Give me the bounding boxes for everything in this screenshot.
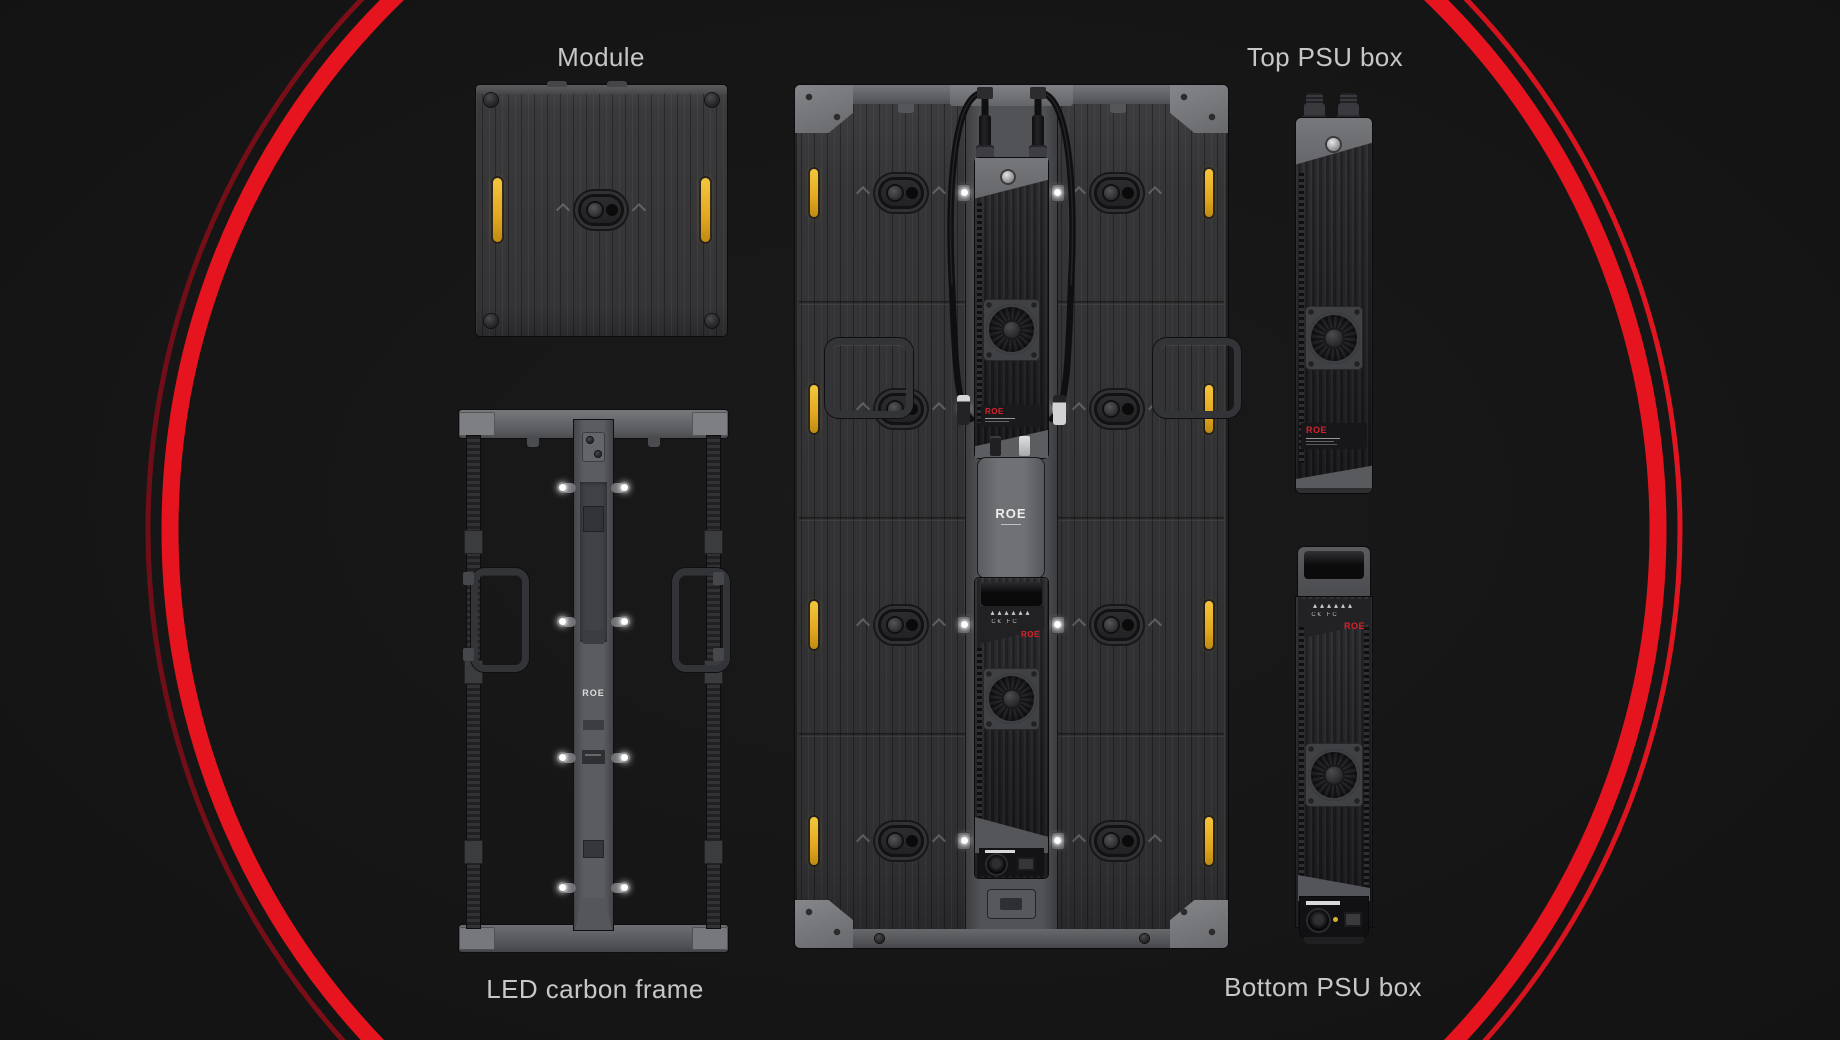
cabinet-roe-plate: ROE [978,458,1044,578]
fan-icon [986,304,1037,355]
rail-joint [704,840,723,864]
latch-icon [878,825,924,857]
spine-foot [575,898,612,930]
frame-bracket-tab [648,436,660,447]
yellow-latch-bar [1205,601,1213,649]
label-line [1306,901,1340,905]
label-line [985,418,1015,419]
psu-label: ROE [981,405,1042,427]
spine-connector-block [583,506,604,532]
cable-plug [979,115,991,147]
spine-roe-logo: ROE [574,688,613,698]
serrated-edge [1299,627,1304,897]
powercon-connector [1308,910,1329,931]
roe-label: ROE [985,407,1004,416]
screw-icon [484,93,498,107]
latch-icon [578,194,624,226]
handle-mount [713,572,724,585]
label-line [1306,438,1340,439]
caption-module: Module [557,42,645,73]
led-indicator [1054,837,1061,844]
roe-label: ROE [1306,425,1327,435]
module-tab [547,81,567,87]
warning-triangle-icons: ▴▴▴▴▴▴ [983,608,1040,617]
serrated-edge [1364,627,1369,897]
psu-out-connector [990,436,1001,456]
yellow-latch-bar [810,601,818,649]
top-psu-box: ROE [1296,93,1372,505]
cable-plug [1032,115,1044,147]
fcc-mark-icon: FC [1327,612,1339,618]
bottom-psu-body: ▴▴▴▴▴▴ C€ FC ROE [1296,597,1372,927]
frame-handle-left [471,568,529,672]
psu-button [1002,171,1014,183]
mounted-bottom-psu: ▴▴▴▴▴▴ C€ FC ROE [975,578,1048,878]
data-port [1344,912,1362,927]
serrated-edge [977,203,982,423]
product-overview-image: Module Top PSU box LED carbon frame Bott… [0,0,1840,1040]
psu-label: ROE [1301,423,1367,449]
screw-icon [875,934,884,943]
label-line [985,421,1009,422]
led-indicator [961,621,968,628]
latch-knob [588,203,602,217]
label-line [1306,444,1337,445]
module-top-edge [476,85,727,94]
cable-end-connector [957,395,970,425]
yellow-latch-bar [810,817,818,865]
led-carbon-frame: ROE [459,410,728,952]
peg-tip [559,618,566,625]
peg-tip [559,484,566,491]
yellow-latch-bar [493,178,502,242]
spine-bracket [582,432,605,462]
corner-plate [1170,900,1228,948]
screw-icon [1140,934,1149,943]
psu-connector-strip [1300,897,1368,937]
latch-hole [606,204,618,216]
cable-end-connector [1053,395,1066,425]
indicator-dot [1333,917,1338,922]
label-line [585,754,601,756]
screw-icon [587,437,593,443]
cabinet-bottom-strip [795,929,1228,948]
roe-label: ROE [1021,630,1040,639]
cable-anchor [1030,87,1046,99]
latch-icon [1094,825,1140,857]
fan-icon [986,673,1037,724]
mounted-top-psu: ROE [975,158,1048,458]
fcc-mark-icon: FC [1007,619,1019,625]
psu-gloss-cap [1304,551,1364,579]
spine-plate-slot [1000,898,1022,910]
frame-spine: ROE [574,420,613,930]
powercon-connector [987,855,1006,874]
peg-tip [621,754,628,761]
peg-tip [621,484,628,491]
module-panel [476,85,727,336]
rail-joint [704,530,723,554]
data-port [1017,857,1035,871]
cabinet-bottom-spine-plate [988,890,1035,918]
label-line [1306,441,1334,442]
screw-icon [705,93,719,107]
ce-mark-icon: C€ [1311,612,1323,618]
corner-plate [795,900,853,948]
psu-gloss-cap [981,582,1042,606]
top-psu-body: ROE [1296,118,1372,493]
peg-tip [621,884,628,891]
latch-icon [878,609,924,641]
fan-icon [1308,749,1360,801]
roe-label: ROE [1344,621,1365,631]
serrated-edge [1299,173,1304,463]
peg-tip [559,884,566,891]
psu-bottom-plate [975,430,1048,458]
led-indicator [1054,621,1061,628]
frame-corner-plate [459,412,495,436]
yellow-latch-bar [701,178,710,242]
rail-joint [464,530,483,554]
warning-triangle-icons: ▴▴▴▴▴▴ [1302,601,1366,610]
frame-corner-plate [692,927,728,950]
spine-block [583,630,604,644]
handle-mount [463,572,474,585]
led-indicator [961,837,968,844]
caption-led-frame: LED carbon frame [486,974,703,1005]
psu-foot-lip [1296,488,1372,493]
cabinet-rear: ROE ROE ▴▴▴▴▴▴ C€ FC ROE [795,85,1228,948]
peg-tip [559,754,566,761]
latch-icon [1094,609,1140,641]
screw-icon [484,314,498,328]
fan-icon [1308,312,1360,364]
ce-mark-icon: C€ [991,619,1003,625]
caption-top-psu: Top PSU box [1247,42,1403,73]
label-line [985,850,1015,853]
certification-marks: C€ FC [983,619,1027,625]
psu-button [1327,138,1340,151]
bottom-psu-box: ▴▴▴▴▴▴ C€ FC ROE [1296,545,1372,945]
peg-tip [621,618,628,625]
rail-joint [464,840,483,864]
handle-mount [713,648,724,661]
psu-connector-strip [979,848,1044,876]
spine-label-plate [582,750,605,764]
frame-corner-plate [459,927,495,950]
cabinet-roe-logo: ROE [978,506,1044,521]
screw-icon [705,314,719,328]
logo-subline [1001,524,1021,525]
screw-icon [595,451,601,457]
cable-anchor [977,87,993,99]
frame-bracket-tab [527,436,539,447]
certification-marks: C€ FC [1300,612,1350,618]
psu-base [1304,937,1364,944]
module-tab [607,81,627,87]
frame-corner-plate [692,412,728,436]
caption-bottom-psu: Bottom PSU box [1224,972,1422,1003]
handle-mount [463,648,474,661]
psu-top-plate [975,158,1048,210]
spine-block [583,720,604,730]
yellow-latch-bar [1205,817,1213,865]
psu-out-connector [1019,436,1030,456]
spine-block [583,840,604,858]
